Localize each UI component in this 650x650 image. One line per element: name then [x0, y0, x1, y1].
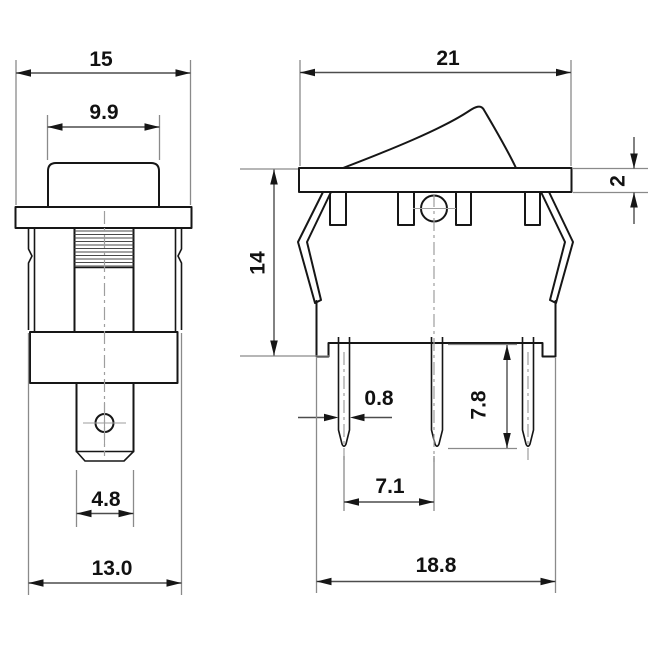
- rocker-profile: [343, 107, 516, 168]
- terminal-thickness-value: 0.8: [364, 387, 394, 410]
- dim-terminal-length: 7.8: [448, 345, 517, 449]
- switch-dimension-drawing: 15 9.9: [0, 0, 650, 650]
- technical-drawing-canvas: 15 9.9: [0, 0, 650, 650]
- front-body-block: [30, 332, 178, 383]
- dim-terminal-pitch: 7.1: [344, 456, 434, 511]
- front-view: 15 9.9: [16, 48, 192, 595]
- pin-2: [432, 337, 443, 446]
- actuator-button: [48, 163, 159, 207]
- front-terminal-width-value: 4.8: [91, 488, 121, 511]
- dim-side-overall-width: 21: [300, 47, 571, 166]
- side-body-outline: [317, 301, 556, 357]
- flange-thickness-value: 2: [607, 175, 630, 187]
- terminal-length-value: 7.8: [468, 390, 491, 420]
- side-overall-width-value: 21: [436, 47, 460, 70]
- front-overall-width-value: 15: [89, 48, 113, 71]
- front-flange: [16, 207, 192, 228]
- base-width-value: 18.8: [416, 554, 457, 577]
- dim-front-terminal-width: 4.8: [77, 470, 134, 527]
- front-body-width-value: 13.0: [92, 557, 133, 580]
- terminal-pitch-value: 7.1: [375, 475, 405, 498]
- dim-front-actuator-width: 9.9: [48, 101, 160, 160]
- dim-flange-thickness: 2: [573, 137, 648, 224]
- side-view: 21 2: [240, 47, 648, 593]
- dim-terminal-thickness: 0.8: [298, 387, 394, 421]
- front-actuator-width-value: 9.9: [89, 101, 118, 124]
- dim-base-width: 18.8: [317, 358, 556, 593]
- body-depth-value: 14: [247, 251, 270, 275]
- side-flange: [299, 168, 572, 192]
